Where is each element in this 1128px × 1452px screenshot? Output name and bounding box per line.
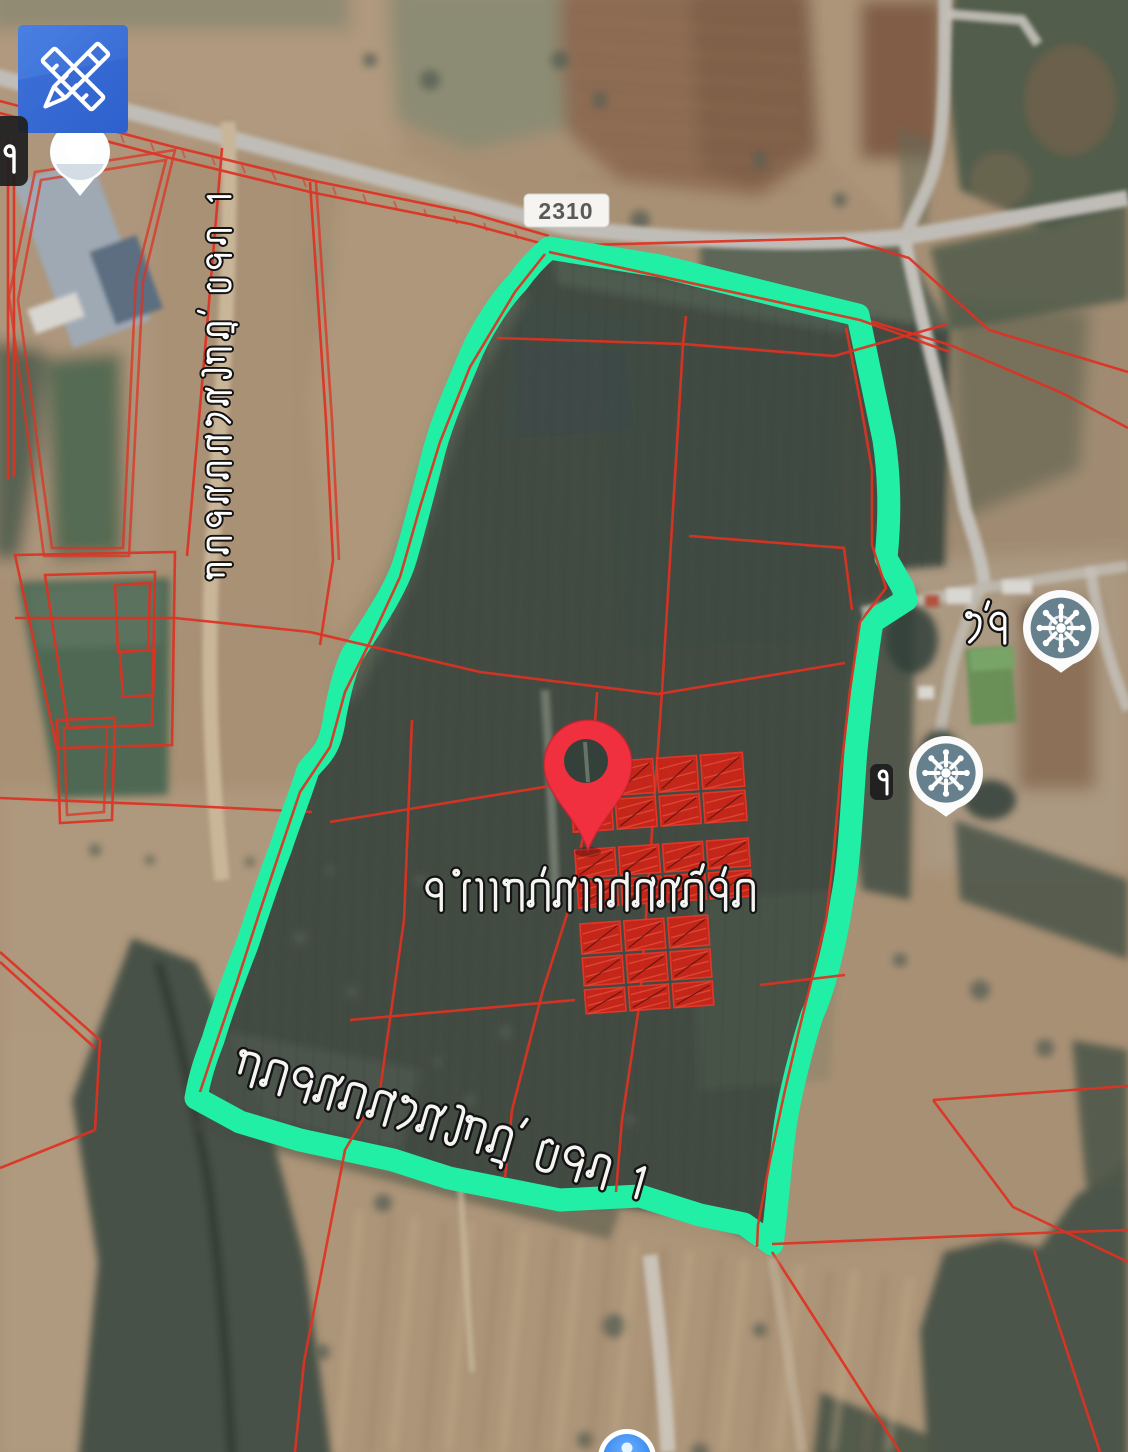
svg-text:2310: 2310	[538, 198, 593, 224]
